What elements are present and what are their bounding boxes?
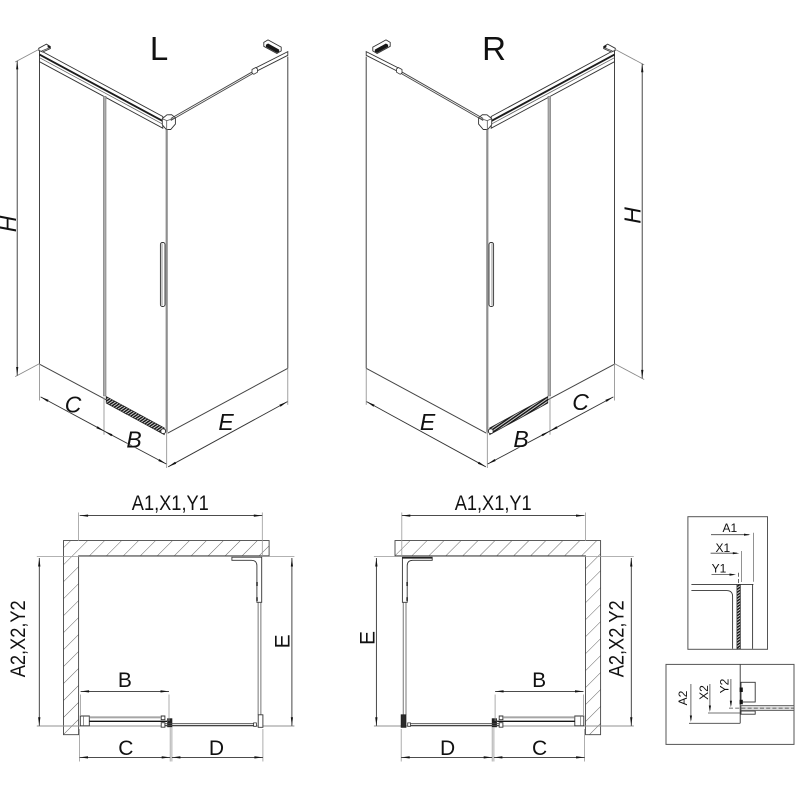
svg-text:E: E (357, 631, 380, 645)
svg-text:A2,X2,Y2: A2,X2,Y2 (7, 600, 30, 677)
svg-text:B: B (118, 669, 132, 692)
svg-text:A2,X2,Y2: A2,X2,Y2 (606, 600, 629, 677)
svg-text:Y2: Y2 (717, 678, 731, 693)
svg-text:C: C (572, 389, 589, 415)
svg-text:C: C (532, 737, 547, 760)
svg-text:E: E (218, 409, 234, 435)
svg-text:E: E (272, 634, 295, 648)
svg-text:B: B (126, 426, 141, 452)
svg-text:E: E (420, 409, 436, 435)
svg-text:X2: X2 (697, 685, 711, 700)
svg-text:D: D (440, 737, 455, 760)
svg-text:Y1: Y1 (712, 562, 727, 576)
svg-text:A2: A2 (676, 690, 690, 705)
svg-text:L: L (150, 30, 168, 67)
svg-text:H: H (0, 215, 21, 232)
svg-text:B: B (513, 426, 528, 452)
svg-text:H: H (620, 207, 646, 224)
svg-text:A1: A1 (723, 521, 738, 535)
svg-text:C: C (65, 391, 82, 417)
svg-text:A1,X1,Y1: A1,X1,Y1 (132, 492, 209, 515)
svg-text:B: B (532, 669, 546, 692)
svg-text:D: D (209, 737, 224, 760)
svg-text:C: C (118, 737, 133, 760)
svg-text:A1,X1,Y1: A1,X1,Y1 (455, 492, 532, 515)
svg-text:R: R (482, 30, 506, 67)
